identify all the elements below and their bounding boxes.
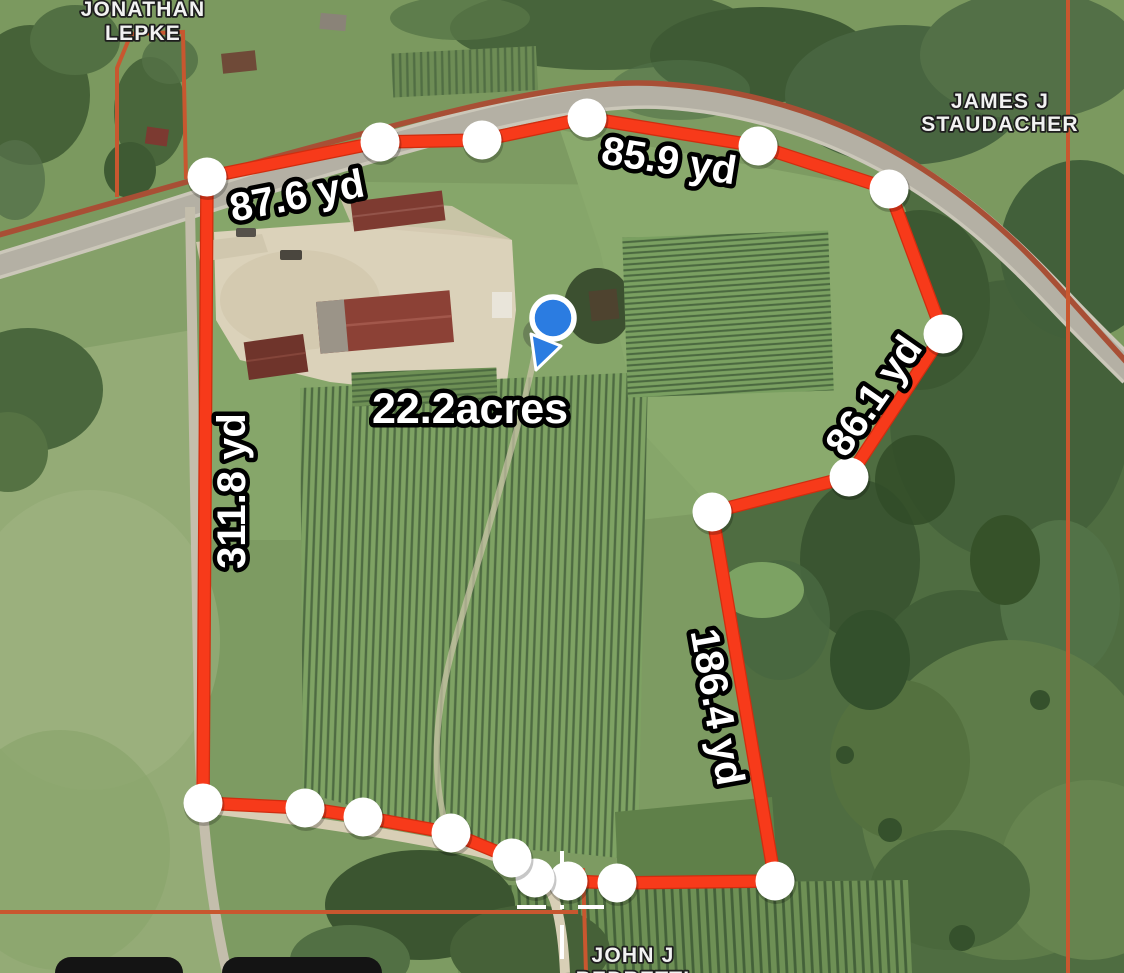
vertex-marker[interactable]: [739, 127, 778, 166]
vertex-marker[interactable]: [830, 458, 869, 497]
vertex-marker[interactable]: [870, 170, 909, 209]
vertex-marker[interactable]: [756, 862, 795, 901]
map-canvas[interactable]: 87.6 yd 85.9 yd 86.1 yd 311.8 yd 186.4 y…: [0, 0, 1124, 973]
area-label: 22.2acres: [372, 385, 568, 433]
vertex-marker[interactable]: [693, 493, 732, 532]
owner-name-line: JONATHAN: [81, 0, 206, 21]
segment-length-label: 311.8 yd: [210, 413, 254, 569]
vertex-marker[interactable]: [184, 784, 223, 823]
pin-head: [532, 297, 574, 339]
vertex-marker[interactable]: [924, 315, 963, 354]
vertex-marker[interactable]: [361, 123, 400, 162]
vertex-marker[interactable]: [598, 864, 637, 903]
vertex-marker[interactable]: [463, 121, 502, 160]
vertex-marker[interactable]: [432, 814, 471, 853]
satellite-background: [0, 0, 1124, 973]
vertex-marker[interactable]: [568, 99, 607, 138]
owner-name-line: STAUDACHER: [921, 113, 1078, 136]
bottom-action-button-left[interactable]: [55, 957, 183, 973]
owner-name-line: JOHN J: [591, 944, 674, 967]
vertex-marker[interactable]: [188, 158, 227, 197]
bottom-action-button-right[interactable]: [222, 957, 382, 973]
owner-name-line: BEDRETTI: [576, 968, 691, 973]
vertex-marker[interactable]: [286, 789, 325, 828]
vertex-marker[interactable]: [344, 798, 383, 837]
owner-name-line: LEPKE: [105, 22, 181, 45]
map-screenshot: 87.6 yd 85.9 yd 86.1 yd 311.8 yd 186.4 y…: [0, 0, 1124, 973]
vertex-marker[interactable]: [493, 839, 532, 878]
owner-name-line: JAMES J: [951, 90, 1049, 113]
